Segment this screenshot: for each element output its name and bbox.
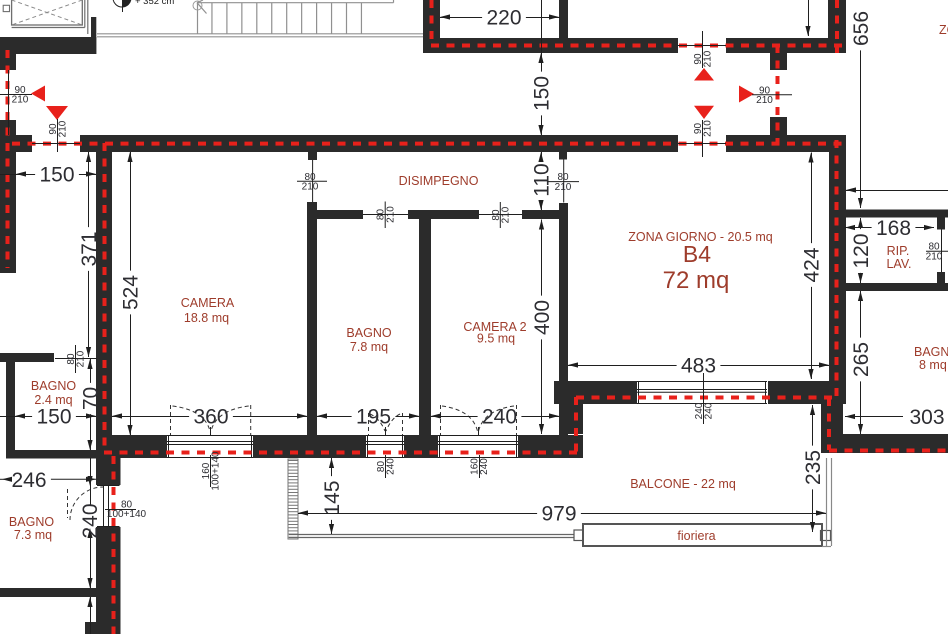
svg-text:210: 210 — [12, 95, 29, 106]
svg-text:fioriera: fioriera — [677, 529, 715, 543]
svg-text:240: 240 — [704, 402, 715, 419]
svg-text:210: 210 — [385, 206, 396, 223]
svg-text:7.3 mq: 7.3 mq — [14, 528, 52, 542]
svg-text:168: 168 — [876, 217, 911, 240]
svg-text:B4: B4 — [683, 241, 711, 267]
svg-text:ZO: ZO — [939, 23, 948, 37]
svg-text:70: 70 — [80, 387, 103, 410]
svg-text:220: 220 — [486, 7, 521, 30]
svg-text:210: 210 — [756, 95, 773, 106]
svg-text:LAV.: LAV. — [886, 257, 911, 271]
svg-text:9.5 mq: 9.5 mq — [477, 332, 515, 346]
svg-text:424: 424 — [801, 247, 824, 282]
svg-text:150: 150 — [36, 406, 71, 429]
svg-text:CAMERA: CAMERA — [181, 296, 235, 310]
svg-text:RIP.: RIP. — [887, 244, 910, 258]
svg-text:210: 210 — [76, 350, 87, 367]
svg-text:240: 240 — [482, 406, 517, 429]
svg-text:18.8 mq: 18.8 mq — [184, 311, 229, 325]
svg-text:BAGNO: BAGNO — [31, 379, 76, 393]
svg-text:100+140: 100+140 — [107, 509, 147, 520]
svg-text:8 mq: 8 mq — [919, 358, 947, 372]
svg-text:240: 240 — [479, 458, 490, 475]
svg-text:979: 979 — [541, 503, 576, 526]
svg-text:240: 240 — [79, 503, 102, 538]
svg-text:246: 246 — [11, 469, 46, 492]
svg-text:210: 210 — [703, 120, 714, 137]
svg-text:145: 145 — [321, 480, 344, 515]
svg-text:240: 240 — [386, 458, 397, 475]
svg-text:100+140: 100+140 — [211, 451, 222, 491]
svg-text:210: 210 — [703, 50, 714, 67]
svg-text:656: 656 — [850, 11, 873, 46]
svg-text:DISIMPEGNO: DISIMPEGNO — [399, 174, 479, 188]
svg-text:110: 110 — [531, 163, 554, 196]
svg-text:BAGNO: BAGNO — [914, 345, 948, 359]
svg-text:195: 195 — [356, 406, 391, 429]
svg-text:120: 120 — [850, 233, 873, 268]
svg-text:303: 303 — [909, 406, 944, 429]
svg-text:265: 265 — [850, 342, 873, 377]
svg-text:371: 371 — [78, 231, 101, 266]
svg-text:235: 235 — [802, 450, 825, 485]
svg-text:150: 150 — [39, 164, 74, 187]
svg-text:210: 210 — [302, 182, 319, 193]
svg-text:BAGNO: BAGNO — [346, 326, 391, 340]
svg-text:210: 210 — [58, 120, 69, 137]
svg-text:72 mq: 72 mq — [663, 267, 730, 294]
svg-text:483: 483 — [681, 355, 716, 378]
svg-text:BAGNO: BAGNO — [9, 515, 54, 529]
svg-text:210: 210 — [555, 182, 572, 193]
svg-text:360: 360 — [193, 406, 228, 429]
svg-text:2.4 mq: 2.4 mq — [34, 393, 72, 407]
svg-text:524: 524 — [120, 275, 143, 310]
svg-text:400: 400 — [531, 300, 554, 335]
svg-text:+ 352 cm: + 352 cm — [135, 0, 174, 7]
svg-text:210: 210 — [926, 251, 943, 262]
svg-text:7.8 mq: 7.8 mq — [350, 340, 388, 354]
svg-text:150: 150 — [531, 76, 554, 111]
svg-text:210: 210 — [501, 206, 512, 223]
svg-text:BALCONE - 22 mq: BALCONE - 22 mq — [630, 477, 736, 491]
